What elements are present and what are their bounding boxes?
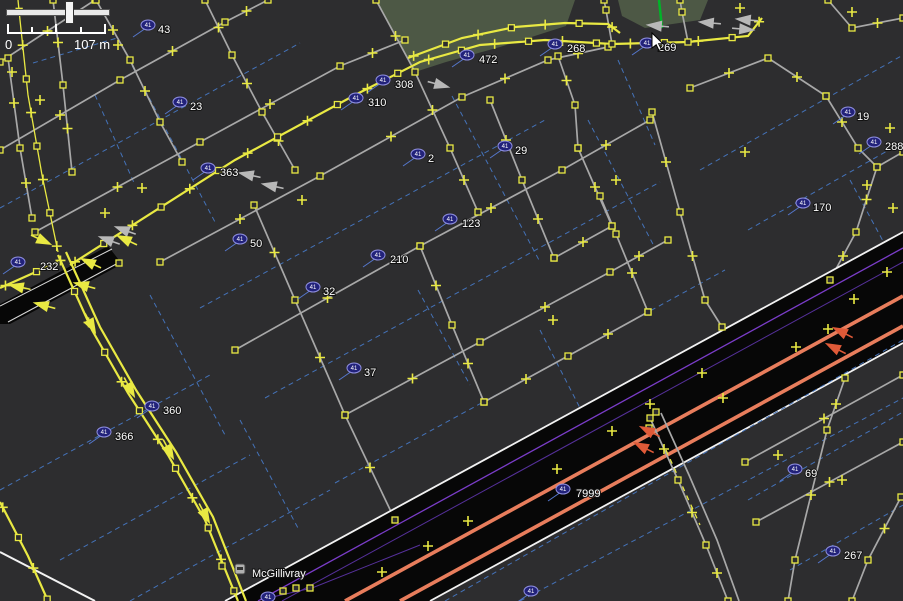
vertex-square-marker bbox=[259, 109, 265, 115]
vertex-square-marker bbox=[265, 0, 271, 3]
badge-code: 41 bbox=[552, 42, 559, 48]
parcel-line bbox=[60, 455, 250, 560]
vertex-square-marker bbox=[334, 102, 340, 108]
vertex-square-marker bbox=[222, 19, 228, 25]
vertex-square-marker bbox=[703, 542, 709, 548]
vertex-cross-marker bbox=[712, 568, 722, 578]
vertex-cross-marker bbox=[486, 203, 496, 213]
vertex-cross-marker bbox=[521, 374, 531, 384]
direction-arrow bbox=[262, 180, 284, 193]
vertex-square-marker bbox=[157, 259, 163, 265]
vertex-cross-marker bbox=[362, 84, 372, 94]
feature-label: 308 bbox=[395, 79, 413, 91]
vertex-square-marker bbox=[519, 177, 525, 183]
arrow-layer bbox=[9, 15, 855, 525]
vertex-square-marker bbox=[23, 76, 29, 82]
vertex-square-marker bbox=[827, 277, 833, 283]
vertex-square-marker bbox=[293, 585, 299, 591]
vertex-square-marker bbox=[179, 159, 185, 165]
badge-code: 41 bbox=[205, 166, 212, 172]
vertex-square-marker bbox=[645, 309, 651, 315]
vertex-square-marker bbox=[205, 525, 211, 531]
highlighted-route bbox=[400, 326, 903, 601]
vertex-square-marker bbox=[44, 596, 50, 601]
utility-line bbox=[282, 262, 903, 601]
vertex-cross-marker bbox=[463, 359, 473, 369]
vertex-cross-marker bbox=[113, 182, 123, 192]
parcel-line bbox=[748, 142, 903, 230]
vertex-square-marker bbox=[675, 477, 681, 483]
route-layer bbox=[0, 0, 762, 601]
badge-code: 41 bbox=[464, 53, 471, 59]
highway-layer bbox=[0, 232, 903, 601]
vertex-cross-marker bbox=[590, 182, 600, 192]
vertex-square-marker bbox=[719, 324, 725, 330]
vertex-cross-marker bbox=[885, 123, 895, 133]
vertex-square-marker bbox=[32, 229, 38, 235]
utility-line bbox=[258, 248, 903, 601]
vertex-square-marker bbox=[117, 77, 123, 83]
feature-label: 360 bbox=[163, 405, 181, 417]
vertex-square-marker bbox=[173, 465, 179, 471]
map-viewport[interactable]: 4143412341308413104136341241294112341210… bbox=[0, 0, 903, 601]
vertex-cross-marker bbox=[168, 46, 178, 56]
vertex-square-marker bbox=[855, 145, 861, 151]
vertex-square-marker bbox=[575, 145, 581, 151]
badge-code: 41 bbox=[502, 144, 509, 150]
street-wc1 bbox=[652, 112, 722, 327]
feature-label: 472 bbox=[479, 54, 497, 66]
vertex-square-marker bbox=[29, 215, 35, 221]
vertex-square-marker bbox=[526, 38, 532, 44]
scale-tick bbox=[55, 24, 57, 33]
vertex-square-marker bbox=[17, 145, 23, 151]
direction-arrow bbox=[700, 18, 722, 29]
vertex-square-marker bbox=[202, 0, 208, 3]
vertex-cross-marker bbox=[243, 148, 253, 158]
vertex-square-marker bbox=[0, 147, 3, 153]
vertex-square-marker bbox=[280, 588, 286, 594]
street-tr-corner bbox=[828, 0, 903, 28]
feature-label: 267 bbox=[844, 550, 862, 562]
feature-label: 43 bbox=[158, 24, 170, 36]
vertex-square-marker bbox=[677, 209, 683, 215]
badge-code: 41 bbox=[310, 285, 317, 291]
vertex-square-marker bbox=[459, 94, 465, 100]
highlighted-route bbox=[345, 296, 903, 601]
vertex-square-marker bbox=[603, 7, 609, 13]
vertex-cross-marker bbox=[693, 36, 703, 46]
vertex-square-marker bbox=[402, 37, 408, 43]
vertex-square-marker bbox=[842, 375, 848, 381]
vertex-square-marker bbox=[601, 0, 607, 3]
vertex-square-marker bbox=[47, 210, 53, 216]
feature-label: 210 bbox=[390, 254, 408, 266]
vertex-square-marker bbox=[613, 231, 619, 237]
vertex-square-marker bbox=[307, 585, 313, 591]
street-bl-corner-road bbox=[0, 552, 95, 601]
parcel-line bbox=[452, 96, 540, 262]
vertex-square-marker bbox=[565, 353, 571, 359]
vertex-square-marker bbox=[136, 408, 142, 414]
parcel-line bbox=[748, 412, 903, 500]
vertex-cross-marker bbox=[52, 241, 62, 251]
feature-badge[interactable]: 4169 bbox=[780, 464, 817, 481]
badge-code: 41 bbox=[380, 78, 387, 84]
scale-tick bbox=[7, 24, 9, 33]
parcel-line bbox=[95, 95, 135, 185]
vertex-square-marker bbox=[702, 297, 708, 303]
vertex-square-marker bbox=[337, 63, 343, 69]
vertex-square-marker bbox=[792, 557, 798, 563]
vertex-square-marker bbox=[481, 399, 487, 405]
vertex-cross-marker bbox=[548, 315, 558, 325]
vertex-square-marker bbox=[677, 0, 683, 3]
feature-badge[interactable]: 41288 bbox=[859, 137, 903, 154]
feature-label: 23 bbox=[190, 101, 202, 113]
scale-bar: 0 107 m bbox=[0, 0, 140, 60]
vertex-square-marker bbox=[824, 427, 830, 433]
vertex-cross-marker bbox=[9, 98, 19, 108]
vertex-cross-marker bbox=[386, 132, 396, 142]
vertex-square-marker bbox=[823, 93, 829, 99]
vertex-cross-marker bbox=[611, 175, 621, 185]
vertex-cross-marker bbox=[873, 18, 883, 28]
feature-label: 232 bbox=[40, 261, 58, 273]
vertex-cross-marker bbox=[35, 95, 45, 105]
vertex-cross-marker bbox=[578, 237, 588, 247]
direction-arrow bbox=[239, 169, 261, 182]
street-br-w3 bbox=[852, 497, 901, 601]
vertex-square-marker bbox=[412, 69, 418, 75]
vertex-square-marker bbox=[593, 40, 599, 46]
scale-bar-handle bbox=[65, 1, 74, 24]
vertex-square-marker bbox=[392, 517, 398, 523]
vertex-cross-marker bbox=[634, 251, 644, 261]
vertex-cross-marker bbox=[880, 524, 890, 534]
badge-code: 41 bbox=[447, 217, 454, 223]
feature-label: 170 bbox=[813, 202, 831, 214]
vertex-cross-marker bbox=[627, 268, 637, 278]
badge-code: 41 bbox=[375, 253, 382, 259]
vertex-square-marker bbox=[342, 412, 348, 418]
feature-label: 7999 bbox=[576, 488, 600, 500]
feature-label: 363 bbox=[220, 167, 238, 179]
feature-label: 32 bbox=[323, 286, 335, 298]
vertex-square-marker bbox=[849, 25, 855, 31]
badge-code: 41 bbox=[830, 549, 837, 555]
vertex-cross-marker bbox=[265, 99, 275, 109]
vertex-cross-marker bbox=[825, 477, 835, 487]
vertex-cross-marker bbox=[242, 6, 252, 16]
street-sign-glyph bbox=[237, 567, 243, 570]
vertex-square-marker bbox=[865, 557, 871, 563]
vertex-square-marker bbox=[447, 145, 453, 151]
park-polygon bbox=[618, 0, 708, 28]
parcel-line bbox=[588, 120, 655, 248]
badge-code: 41 bbox=[845, 110, 852, 116]
vertex-cross-marker bbox=[315, 353, 325, 363]
feature-badge[interactable]: 41310 bbox=[341, 93, 386, 110]
vertex-square-marker bbox=[765, 55, 771, 61]
vertex-square-marker bbox=[219, 563, 225, 569]
vertex-cross-marker bbox=[428, 105, 438, 115]
vertex-square-marker bbox=[825, 0, 831, 3]
feature-label: 19 bbox=[857, 111, 869, 123]
vertex-square-marker bbox=[373, 0, 379, 3]
vertex-square-marker bbox=[753, 519, 759, 525]
scale-bar-line bbox=[6, 9, 110, 16]
vertex-square-marker bbox=[647, 415, 653, 421]
vertex-square-marker bbox=[679, 9, 685, 15]
vertex-square-marker bbox=[597, 193, 603, 199]
vertex-cross-marker bbox=[7, 67, 17, 77]
feature-badge[interactable]: 4129 bbox=[490, 141, 527, 158]
vertex-square-marker bbox=[229, 52, 235, 58]
vertex-cross-marker bbox=[837, 117, 847, 127]
vertex-square-marker bbox=[508, 25, 514, 31]
vertex-cross-marker bbox=[137, 183, 147, 193]
badge-code: 41 bbox=[415, 152, 422, 158]
feature-badge[interactable]: 4132 bbox=[298, 282, 335, 299]
badge-code: 41 bbox=[351, 366, 358, 372]
vertex-cross-marker bbox=[235, 214, 245, 224]
vertex-square-marker bbox=[443, 41, 449, 47]
vertex-square-marker bbox=[555, 53, 561, 59]
vertex-square-marker bbox=[576, 20, 582, 26]
scale-zero-label: 0 bbox=[5, 37, 12, 52]
vertex-square-marker bbox=[197, 139, 203, 145]
vertex-square-marker bbox=[874, 164, 880, 170]
scale-tick bbox=[104, 24, 106, 33]
feature-badge[interactable]: 41170 bbox=[788, 198, 831, 215]
vertex-square-marker bbox=[742, 459, 748, 465]
vertex-square-marker bbox=[477, 339, 483, 345]
vertex-cross-marker bbox=[187, 493, 197, 503]
vertex-cross-marker bbox=[0, 281, 10, 291]
badge-code: 41 bbox=[149, 404, 156, 410]
vertex-cross-marker bbox=[500, 74, 510, 84]
street-par-above bbox=[35, 40, 405, 232]
vertex-square-marker bbox=[251, 202, 257, 208]
feature-badge[interactable]: 41267 bbox=[818, 546, 862, 563]
parcel-line bbox=[200, 120, 545, 308]
vertex-square-marker bbox=[729, 35, 735, 41]
vertex-square-marker bbox=[69, 169, 75, 175]
feature-label: 310 bbox=[368, 97, 386, 109]
feature-badge[interactable]: 4137 bbox=[339, 363, 376, 380]
vertex-cross-marker bbox=[773, 450, 783, 460]
vertex-cross-marker bbox=[459, 175, 469, 185]
parcel-line bbox=[240, 420, 298, 528]
vertex-cross-marker bbox=[862, 195, 872, 205]
badge-code: 41 bbox=[353, 96, 360, 102]
feature-badge[interactable]: 412 bbox=[403, 149, 434, 166]
vertex-cross-marker bbox=[806, 490, 816, 500]
vertex-square-marker bbox=[685, 39, 691, 45]
street-tr-spur bbox=[877, 152, 903, 167]
feature-label: 2 bbox=[428, 153, 434, 165]
parcel-line bbox=[0, 43, 300, 208]
vertex-cross-marker bbox=[302, 116, 312, 126]
scale-tick bbox=[31, 27, 33, 33]
vertex-square-marker bbox=[559, 167, 565, 173]
vertex-cross-marker bbox=[740, 147, 750, 157]
vertex-cross-marker bbox=[26, 108, 36, 118]
scale-distance-label: 107 m bbox=[74, 37, 110, 52]
street-u4 bbox=[235, 120, 650, 350]
route-y-blc bbox=[0, 502, 48, 601]
vertex-square-marker bbox=[853, 229, 859, 235]
vertex-cross-marker bbox=[562, 76, 572, 86]
vertex-cross-marker bbox=[533, 214, 543, 224]
vertex-cross-marker bbox=[21, 178, 31, 188]
vertex-square-marker bbox=[34, 269, 40, 275]
vertex-cross-marker bbox=[831, 399, 841, 409]
vertex-square-marker bbox=[292, 167, 298, 173]
vertex-cross-marker bbox=[297, 195, 307, 205]
vertex-cross-marker bbox=[100, 208, 110, 218]
vertex-cross-marker bbox=[847, 7, 857, 17]
feature-badge[interactable]: 41232 bbox=[3, 257, 58, 274]
vertex-square-marker bbox=[649, 109, 655, 115]
vertex-cross-marker bbox=[408, 374, 418, 384]
vertex-cross-marker bbox=[140, 86, 150, 96]
route-y-r2a bbox=[58, 255, 238, 601]
vertex-cross-marker bbox=[63, 124, 73, 134]
vertex-square-marker bbox=[34, 143, 40, 149]
badge-code: 41 bbox=[560, 487, 567, 493]
badge-code: 41 bbox=[800, 201, 807, 207]
feature-label: 288 bbox=[885, 141, 903, 153]
feature-label: 366 bbox=[115, 431, 133, 443]
vertex-square-marker bbox=[60, 82, 66, 88]
vertex-cross-marker bbox=[38, 175, 48, 185]
badge-code: 41 bbox=[871, 140, 878, 146]
vertex-square-marker bbox=[417, 243, 423, 249]
vertex-square-marker bbox=[232, 347, 238, 353]
vertex-cross-marker bbox=[55, 110, 65, 120]
vertex-square-marker bbox=[72, 288, 78, 294]
map-svg[interactable]: 4143412341308413104136341241294112341210… bbox=[0, 0, 903, 601]
vertex-square-marker bbox=[475, 209, 481, 215]
vertex-square-marker bbox=[653, 409, 659, 415]
feature-label: 268 bbox=[567, 43, 585, 55]
vertex-cross-marker bbox=[540, 302, 550, 312]
vertex-square-marker bbox=[687, 85, 693, 91]
vertex-square-marker bbox=[231, 588, 237, 594]
badge-code: 41 bbox=[528, 589, 535, 595]
vertex-cross-marker bbox=[603, 329, 613, 339]
vertex-square-marker bbox=[449, 322, 455, 328]
badge-code: 41 bbox=[101, 430, 108, 436]
badge-code: 41 bbox=[792, 467, 799, 473]
feature-label: 69 bbox=[805, 468, 817, 480]
vertex-square-marker bbox=[15, 535, 21, 541]
vertex-square-marker bbox=[157, 119, 163, 125]
vertex-cross-marker bbox=[368, 48, 378, 58]
vertex-square-marker bbox=[102, 349, 108, 355]
parcel-line bbox=[150, 295, 225, 435]
vertex-square-marker bbox=[487, 97, 493, 103]
vertex-cross-marker bbox=[365, 463, 375, 473]
street-name-label: McGillivray bbox=[252, 568, 306, 580]
vertex-square-marker bbox=[275, 134, 281, 140]
vertex-square-marker bbox=[898, 494, 903, 500]
vertex-square-marker bbox=[545, 57, 551, 63]
vertex-cross-marker bbox=[625, 39, 635, 49]
vertex-cross-marker bbox=[792, 72, 802, 82]
vertex-cross-marker bbox=[735, 3, 745, 13]
vertex-square-marker bbox=[116, 260, 122, 266]
vertex-cross-marker bbox=[838, 251, 848, 261]
badge-code: 41 bbox=[265, 595, 272, 601]
vertex-square-marker bbox=[647, 117, 653, 123]
feature-label: 29 bbox=[515, 145, 527, 157]
vertex-cross-marker bbox=[270, 248, 280, 258]
feature-badge[interactable]: 41 bbox=[516, 586, 538, 601]
vertex-square-marker bbox=[609, 223, 615, 229]
vertex-cross-marker bbox=[661, 157, 671, 167]
badge-code: 41 bbox=[237, 237, 244, 243]
route-y-r2b bbox=[66, 252, 246, 601]
vertex-square-marker bbox=[158, 204, 164, 210]
feature-badge[interactable]: 4123 bbox=[165, 97, 202, 114]
vertex-square-marker bbox=[292, 297, 298, 303]
vertex-square-marker bbox=[665, 237, 671, 243]
vertex-square-marker bbox=[607, 269, 613, 275]
vertex-square-marker bbox=[551, 255, 557, 261]
feature-badge[interactable]: 4150 bbox=[225, 234, 262, 251]
direction-arrow bbox=[427, 77, 450, 91]
parcel-line bbox=[618, 60, 655, 145]
scale-tick bbox=[80, 27, 82, 33]
badge-code: 41 bbox=[644, 41, 651, 47]
vertex-square-marker bbox=[572, 102, 578, 108]
feature-label: 50 bbox=[250, 238, 262, 250]
feature-label: 123 bbox=[462, 218, 480, 230]
vertex-square-marker bbox=[317, 173, 323, 179]
vertex-square-marker bbox=[609, 41, 615, 47]
vertex-cross-marker bbox=[688, 251, 698, 261]
vertex-cross-marker bbox=[242, 79, 252, 89]
vertex-cross-marker bbox=[819, 414, 829, 424]
vertex-cross-marker bbox=[724, 68, 734, 78]
street-tr-u8 bbox=[690, 58, 826, 96]
vertex-cross-marker bbox=[431, 281, 441, 291]
vertex-cross-marker bbox=[888, 203, 898, 213]
feature-label: 37 bbox=[364, 367, 376, 379]
badge-code: 41 bbox=[15, 260, 22, 266]
badge-code: 41 bbox=[177, 100, 184, 106]
badge-code: 41 bbox=[145, 23, 152, 29]
vertex-square-marker bbox=[395, 70, 401, 76]
